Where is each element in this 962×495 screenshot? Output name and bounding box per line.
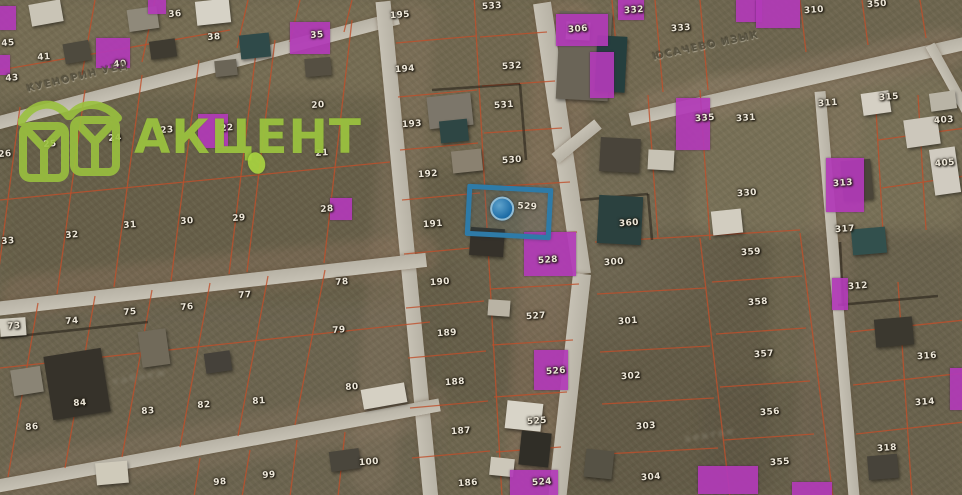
parcel-label: 313 (833, 179, 854, 189)
parcel-boundary-line (655, 0, 663, 92)
building-roof (711, 208, 743, 235)
parcel-boundary-line (856, 422, 962, 434)
parcel-label: 526 (546, 367, 567, 377)
parcel-label: 29 (232, 214, 246, 224)
parcel-boundary-line (290, 440, 297, 495)
parcel-label: 36 (168, 10, 182, 20)
parcel-label: 356 (760, 408, 781, 418)
parcel-label: 303 (636, 422, 657, 432)
parcel-boundary-line (604, 448, 718, 454)
parcel-label: 74 (65, 317, 79, 327)
building-roof (851, 227, 887, 256)
building-roof (874, 316, 914, 347)
building-roof (10, 366, 44, 396)
selected-parcel-number: 529 (517, 202, 537, 212)
building-roof (95, 461, 129, 486)
fence-line (648, 194, 652, 240)
parcel-label: 525 (527, 417, 548, 427)
parcel-boundary-line (492, 340, 573, 345)
oks-highlight (0, 55, 10, 75)
parcel-label: 311 (818, 99, 839, 109)
parcel-label: 358 (748, 298, 769, 308)
parcel-boundary-line (396, 36, 476, 43)
parcel-label: 75 (123, 308, 137, 318)
building-roof (599, 137, 641, 173)
parcel-boundary-line (720, 381, 810, 387)
parcel-label: 524 (532, 478, 553, 488)
parcel-label: 310 (804, 6, 825, 16)
parcel-label: 301 (618, 317, 639, 327)
parcel-label: 315 (879, 93, 900, 103)
parcel-label: 306 (568, 25, 589, 35)
parcel-label: 84 (73, 399, 87, 409)
parcel-boundary-line (918, 95, 926, 230)
parcel-label: 350 (867, 0, 888, 10)
parcel-boundary-line (724, 434, 814, 440)
oks-highlight (792, 482, 832, 495)
parcel-label: 189 (437, 329, 458, 339)
parcel-label: 403 (934, 116, 955, 126)
parcel-label: 187 (451, 427, 472, 437)
parcel-boundary-line (716, 328, 806, 334)
oks-highlight (148, 0, 166, 14)
parcel-label: 28 (320, 205, 334, 215)
oks-highlight (950, 368, 962, 410)
parcel-label: 532 (502, 62, 523, 72)
parcel-label: 73 (7, 322, 21, 332)
oks-highlight (590, 52, 614, 98)
parcel-label: 302 (621, 372, 642, 382)
parcel-label: 359 (741, 248, 762, 258)
parcel-label: 82 (197, 401, 211, 411)
parcel-label: 304 (641, 473, 662, 483)
parcel-label: 78 (335, 278, 349, 288)
parcel-label: 531 (494, 101, 515, 111)
parcel-boundary-line (194, 458, 200, 495)
parcel-label: 360 (619, 219, 640, 229)
building-roof (43, 348, 110, 420)
building-roof (867, 454, 899, 481)
oks-highlight (698, 466, 758, 494)
parcel-boundary-line (412, 451, 490, 458)
selected-parcel-marker[interactable] (490, 196, 515, 221)
oks-highlight (676, 98, 710, 150)
parcel-boundary-line (853, 373, 962, 385)
parcel-boundary-line (712, 276, 802, 282)
parcel-label: 98 (213, 478, 227, 488)
building-roof (304, 57, 331, 77)
oks-highlight (756, 0, 800, 28)
parcel-boundary-line (898, 282, 912, 495)
parcel-label: 41 (37, 53, 51, 63)
building-roof (195, 0, 231, 26)
parcel-boundary-line (494, 392, 567, 397)
satellite-map[interactable]: 4543413638354026252423222021333231302928… (0, 0, 962, 495)
parcel-label: 528 (538, 256, 559, 266)
parcel-label: 45 (1, 39, 15, 49)
parcel-boundary-line (600, 346, 710, 352)
parcel-boundary-line (406, 301, 484, 308)
parcel-boundary-line (295, 270, 325, 425)
parcel-label: 195 (390, 11, 411, 21)
parcel-label: 191 (423, 220, 444, 230)
parcel-label: 357 (754, 350, 775, 360)
building-roof (647, 149, 674, 170)
parcel-boundary-line (410, 401, 488, 408)
parcel-label: 331 (736, 114, 757, 124)
building-roof (439, 119, 469, 144)
parcel-label: 317 (835, 225, 856, 235)
parcel-label: 86 (25, 423, 39, 433)
parcel-label: 530 (502, 156, 523, 166)
parcel-label: 355 (770, 458, 791, 468)
parcel-label: 31 (123, 221, 137, 231)
parcel-label: 188 (445, 378, 466, 388)
parcel-label: 314 (915, 398, 936, 408)
parcel-boundary-line (82, 0, 95, 75)
parcel-label: 30 (180, 217, 194, 227)
building-roof (451, 148, 483, 173)
parcel-label: 186 (458, 479, 479, 489)
building-roof (329, 448, 361, 472)
building-roof (138, 328, 171, 368)
parcel-label: 43 (5, 74, 19, 84)
parcel-boundary-line (700, 238, 730, 495)
parcel-label: 79 (332, 326, 346, 336)
building-roof (929, 90, 957, 111)
parcel-label: 316 (917, 352, 938, 362)
parcel-label: 527 (526, 312, 547, 322)
parcel-boundary-line (490, 284, 579, 289)
building-roof (214, 59, 238, 77)
parcel-boundary-line (602, 398, 714, 404)
parcel-label: 533 (482, 2, 503, 12)
building-roof (584, 449, 615, 480)
parcel-label: 33 (1, 237, 15, 247)
parcel-boundary-line (597, 288, 706, 294)
fence-line (838, 296, 938, 305)
selected-parcel-outline[interactable]: 529 (465, 184, 554, 240)
fence-line (432, 84, 520, 90)
parcel-boundary-line (242, 450, 250, 495)
parcel-boundary-line (408, 351, 486, 358)
parcel-label: 80 (345, 383, 359, 393)
parcel-label: 192 (418, 170, 439, 180)
parcel-label: 330 (737, 189, 758, 199)
parcel-label: 35 (310, 31, 324, 41)
parcel-label: 81 (252, 397, 266, 407)
parcel-label: 32 (65, 231, 79, 241)
parcel-boundary-line (480, 32, 547, 37)
oks-highlight (832, 278, 848, 310)
parcel-label: 83 (141, 407, 155, 417)
parcel-boundary-line (920, 0, 926, 38)
parcel-label: 335 (695, 114, 716, 124)
parcel-label: 193 (402, 120, 423, 130)
parcel-label: 99 (262, 471, 276, 481)
parcel-label: 318 (877, 444, 898, 454)
oks-highlight (0, 6, 16, 30)
building-roof (487, 299, 510, 316)
brand-watermark: АКЦЕНТ (16, 92, 376, 192)
parcel-label: 38 (207, 33, 221, 43)
parcel-label: 300 (604, 258, 625, 268)
parcel-label: 333 (671, 24, 692, 34)
parcel-label: 190 (430, 278, 451, 288)
parcel-boundary-line (800, 233, 833, 495)
parcel-label: 77 (238, 291, 252, 301)
parcel-label: 405 (935, 159, 956, 169)
building-roof (204, 350, 233, 373)
fence-line (520, 84, 526, 160)
parcel-label: 76 (180, 303, 194, 313)
building-roof (518, 431, 551, 468)
parcel-label: 194 (395, 65, 416, 75)
parcel-label: 100 (359, 458, 380, 468)
parcel-label: 312 (848, 282, 869, 292)
building-roof (149, 38, 177, 59)
brand-logo-icon (18, 92, 122, 188)
parcel-label: 332 (624, 6, 645, 16)
building-roof (239, 32, 271, 59)
parcel-label: 26 (0, 150, 12, 160)
